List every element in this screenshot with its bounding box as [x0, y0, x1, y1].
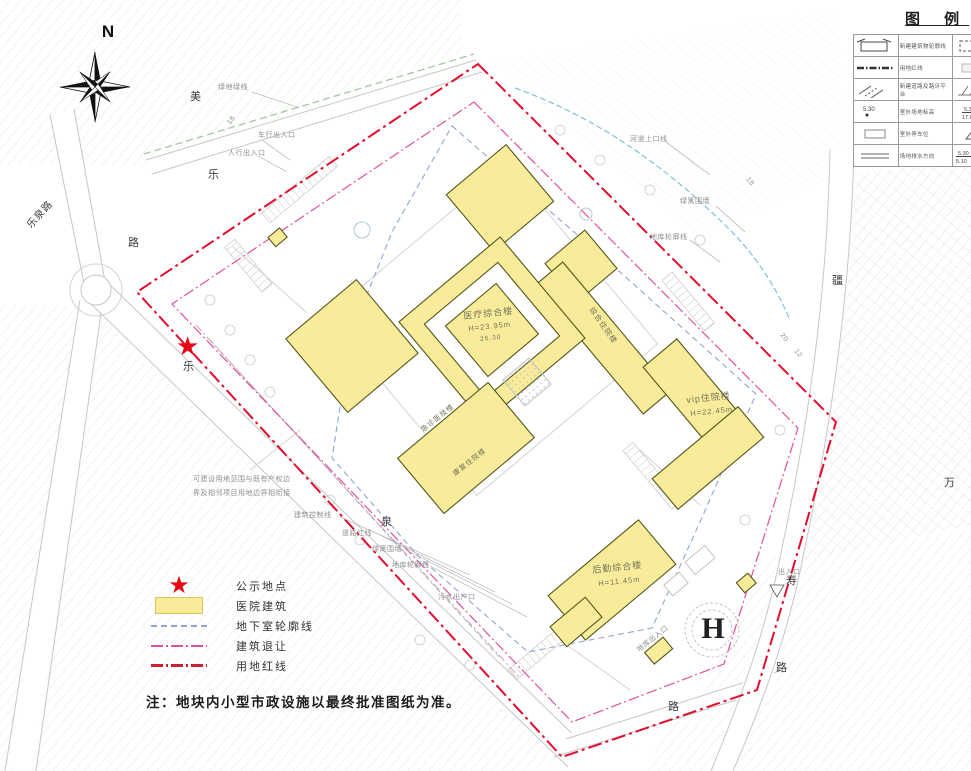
road-name-label: 路	[128, 238, 140, 249]
helipad-marker: H	[700, 612, 726, 646]
legend-row-label: 新建建筑物轮廓线	[898, 35, 953, 57]
building-outpatient-wing	[446, 145, 553, 252]
legend-row-label: 室外场地标高	[898, 101, 953, 123]
road-name-label: 路	[668, 702, 680, 713]
road-name-label: 乐	[208, 170, 220, 181]
yellow-swatch-icon	[155, 597, 203, 614]
legend-item-notice: ★ 公示地点	[150, 576, 314, 595]
site-plan-canvas: N ★ H 图 例 新建建筑物轮廓线地下室轮廓线用地红线绿化用地新建道路及路牙平…	[0, 0, 971, 771]
annotation-text: 建筑控制线	[294, 512, 332, 519]
annotation-text: 可建设用地范围与既有产权边	[193, 476, 291, 483]
legend-row-label: 室外停车位	[898, 123, 953, 145]
annotation-text: 车行出入口	[258, 132, 296, 139]
blue-dash-line-icon	[151, 625, 207, 627]
annotation-text: 绿篱围墙	[372, 546, 402, 553]
annotation-text: 人行出入口	[228, 150, 266, 157]
legend-item-label: 地下室轮廓线	[236, 618, 314, 634]
pink-dashdot-line-icon	[151, 645, 207, 647]
frac2-symbol-icon: 5.305.10室外	[953, 145, 971, 167]
annotation-text: 污水出户口	[438, 594, 476, 601]
plan-note: 注：地块内小型市政设施以最终批准图纸为准。	[146, 691, 461, 711]
svg-text:5.30: 5.30	[863, 107, 875, 113]
legend-row: 5.30室外场地标高5.3017.60场地标高	[854, 101, 971, 123]
legend-panel: 图 例 新建建筑物轮廓线地下室轮廓线用地红线绿化用地新建道路及路牙平台放坡边线5…	[853, 4, 971, 167]
redline-symbol-icon	[854, 57, 899, 79]
legend-item-label: 医院建筑	[236, 598, 288, 614]
north-label: N	[81, 22, 135, 42]
annotation-text: 河道上口线	[630, 136, 668, 143]
frac-symbol-icon: 5.3017.60	[953, 101, 971, 123]
map-legend: ★ 公示地点 医院建筑 地下室轮廓线 建筑退让 用地红线	[150, 576, 314, 676]
building-west-wing	[286, 280, 418, 413]
legend-row-label: 场地排水方向	[898, 145, 953, 167]
road-name-label: 泉	[381, 517, 393, 528]
legend-table: 新建建筑物轮廓线地下室轮廓线用地红线绿化用地新建道路及路牙平台放坡边线5.30室…	[853, 34, 971, 167]
tri-symbol-icon	[953, 123, 971, 145]
notice-location-star: ★	[176, 333, 199, 359]
road-name-label: 美	[190, 92, 202, 103]
newbuild-symbol-icon	[854, 35, 899, 57]
stall-symbol-icon	[854, 123, 899, 145]
site-plan-drawing	[0, 0, 971, 771]
annotation-text: 地库轮廓线	[392, 562, 430, 569]
legend-row: 室外停车位场地出入口	[854, 123, 971, 145]
legend-item-label: 用地红线	[236, 658, 288, 674]
road-name-label: 乐	[183, 362, 195, 373]
spot-symbol-icon: 5.30	[854, 101, 899, 123]
building-gatehouse	[268, 228, 287, 247]
road-symbol-icon	[854, 79, 899, 101]
road-name-label: 寿	[786, 576, 798, 587]
legend-row: 新建建筑物轮廓线地下室轮廓线	[854, 35, 971, 57]
red-dashdot-line-icon	[151, 664, 207, 667]
legend-item-label: 建筑退让	[236, 638, 288, 654]
legend-row: 新建道路及路牙平台放坡边线	[854, 79, 971, 101]
road-name-label: 路	[776, 663, 788, 674]
annotation-text: 界及相邻项目用地边界相衔接	[193, 490, 291, 497]
legend-item-setback: 建筑退让	[150, 636, 314, 655]
annotation-text: 地库轮廓线	[650, 234, 688, 241]
road-name-label: 疆	[832, 276, 844, 287]
annotation-text: 绿篱围墙	[680, 198, 710, 205]
svg-text:17.60: 17.60	[962, 115, 971, 120]
annotation-text: 绿地绿线	[218, 84, 248, 91]
legend-item-basement: 地下室轮廓线	[150, 616, 314, 635]
legend-item-label: 公示地点	[236, 578, 288, 594]
legend-item-hospital: 医院建筑	[150, 596, 314, 615]
svg-text:5.10: 5.10	[956, 159, 967, 164]
legend-row-label: 用地红线	[898, 57, 953, 79]
building-emergency-wing	[398, 382, 535, 513]
legend-row: 场地排水方向5.305.10室外坡度标注	[854, 145, 971, 167]
star-icon: ★	[168, 574, 190, 598]
road-name-label: 万	[944, 478, 956, 489]
drain-symbol-icon	[854, 145, 899, 167]
legend-row: 用地红线绿化用地	[854, 57, 971, 79]
compass-rose-icon	[55, 42, 135, 134]
lightrect-symbol-icon	[953, 57, 971, 79]
legend-row-label: 新建道路及路牙平台	[898, 79, 953, 101]
legend-title: 图 例	[853, 4, 971, 31]
north-compass: N	[55, 22, 135, 134]
legend-item-redline: 用地红线	[150, 656, 314, 675]
dashrect-symbol-icon	[953, 35, 971, 57]
slope-symbol-icon	[953, 79, 971, 101]
annotation-text: 道路红线	[342, 530, 372, 537]
